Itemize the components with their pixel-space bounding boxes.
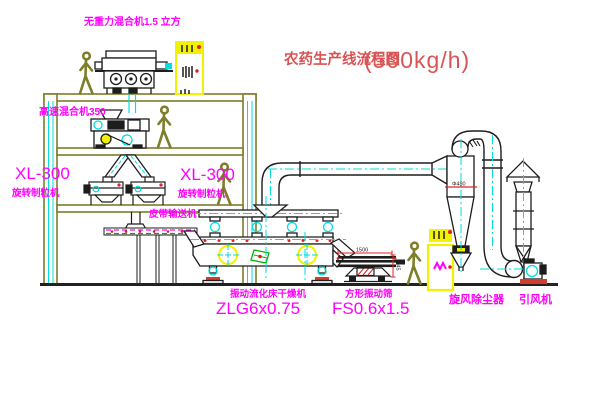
cyclone-label: 旋风除尘器 [448, 292, 505, 306]
screen-length-dim: 1500 [356, 248, 368, 254]
worker-figure [408, 243, 421, 284]
diagram-capacity: (500kg/h) [364, 47, 470, 73]
exhaust-duct [262, 156, 447, 207]
vibrator-unit [357, 268, 374, 276]
dryer-model-label: ZLG6x0.75 [216, 299, 300, 318]
worker-figure [80, 53, 93, 94]
induced-draft-fan [520, 259, 547, 284]
granulator-left-model-label: XL-300 [15, 164, 70, 183]
indicator-dot [197, 45, 201, 49]
belt-conveyor [104, 212, 204, 283]
spring-mounts [210, 217, 333, 238]
granulator-right-model-label: XL-300 [180, 165, 235, 184]
bucket-elevator-top [176, 42, 203, 94]
process-flow-diagram: 1500 545 Φ480 [0, 0, 600, 403]
granulator-left-name-label: 旋转制粒机 [11, 187, 60, 199]
paddle-mixer [95, 51, 173, 113]
granulator-right [126, 177, 165, 205]
cyclone-separator: Φ480 [445, 139, 480, 273]
granulator-left [84, 177, 123, 205]
coupling [165, 63, 172, 69]
bucket-elevator-bottom [428, 229, 453, 290]
worker-figure [158, 107, 171, 148]
screen-model-label: FS0.6x1.5 [332, 299, 410, 318]
granulator-right-name-label: 旋转制粒机 [177, 188, 226, 200]
screen-height-dim: 545 [395, 261, 401, 270]
cyclone-diameter-dim: Φ480 [452, 182, 466, 188]
roof-slab [44, 94, 256, 101]
floor2-slab [57, 148, 243, 155]
fan-label: 引风机 [519, 292, 552, 306]
high-speed-mixer-label: 高速混合机350 [39, 105, 106, 118]
belt-conveyor-label: 皮带输送机 [148, 208, 197, 220]
distribution-chute [105, 155, 151, 177]
gravity-free-mixer-label: 无重力混合机1.5 立方 [83, 15, 181, 28]
dryer-legs [203, 266, 332, 284]
cad-drawing: 1500 545 Φ480 [0, 0, 600, 403]
fan-base [520, 279, 547, 284]
vibrating-screen: 1500 545 [331, 239, 405, 282]
